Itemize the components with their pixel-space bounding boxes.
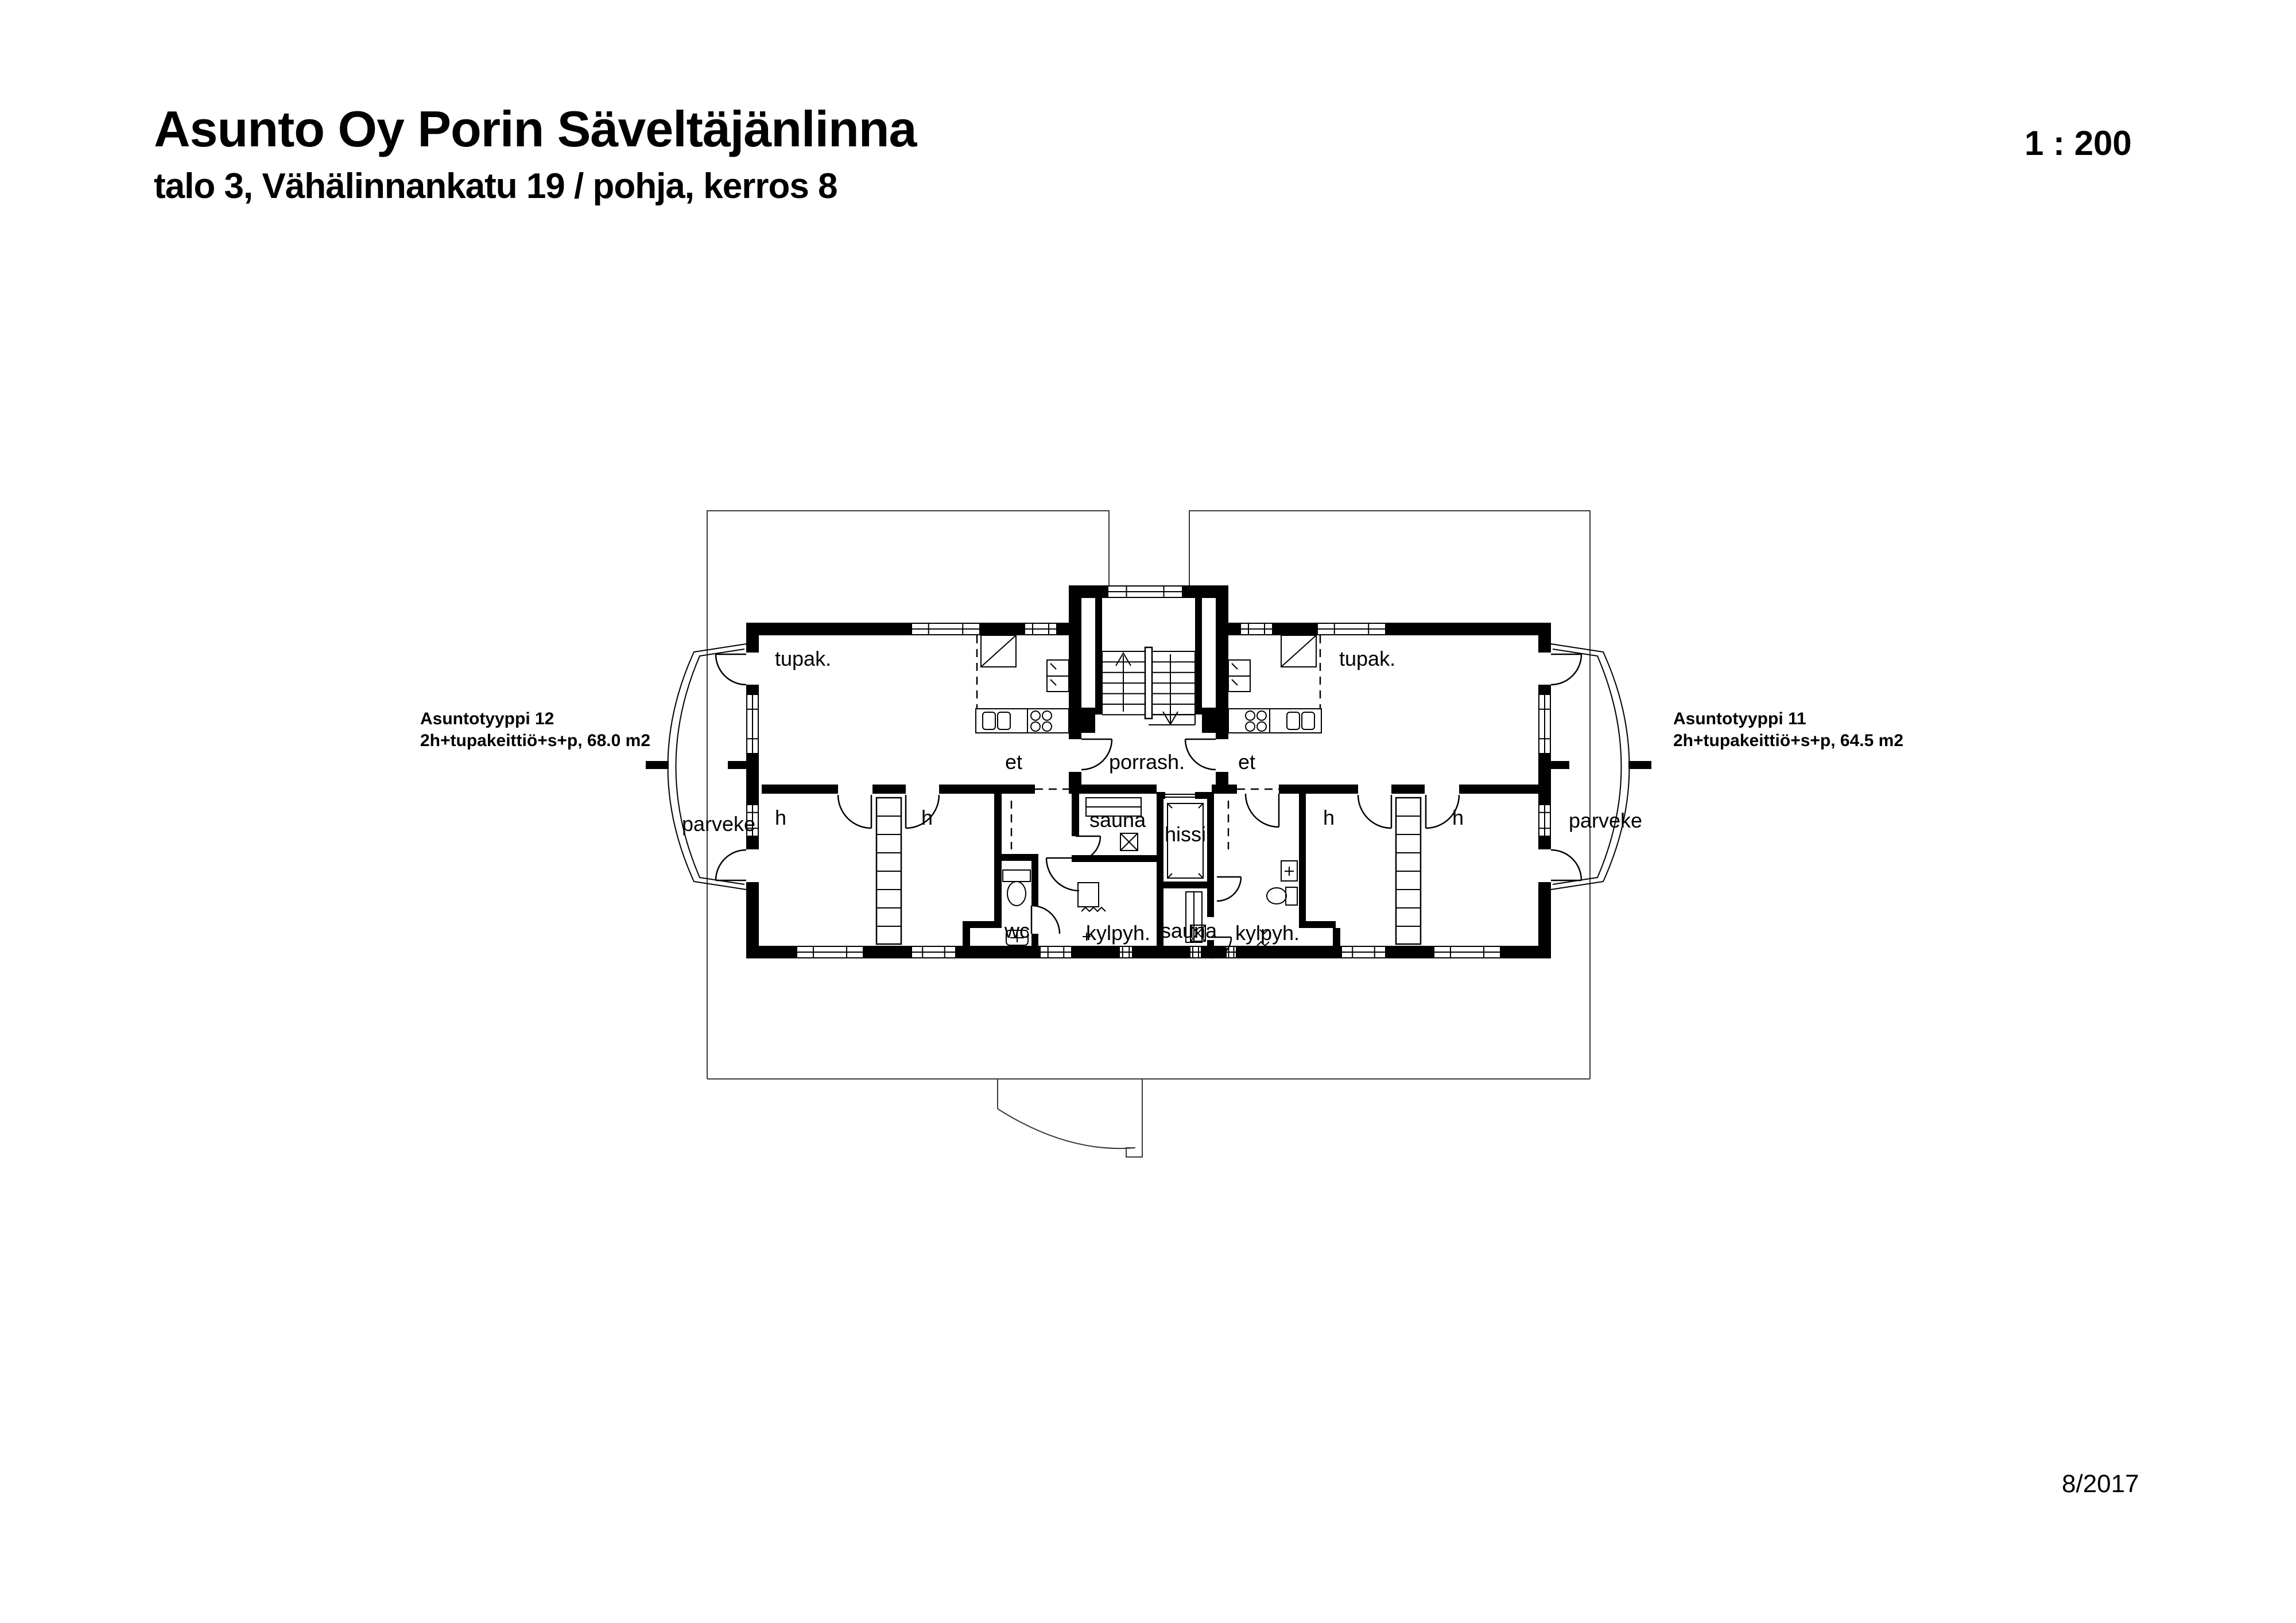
label-sauna-left: sauna bbox=[1089, 808, 1146, 832]
sheet-date: 8/2017 bbox=[2062, 1470, 2139, 1498]
sheet-subtitle: talo 3, Vähälinnankatu 19 / pohja, kerro… bbox=[154, 166, 837, 206]
label-h2: h bbox=[921, 806, 933, 829]
apartment-left-spec: 2h+tupakeittiö+s+p, 68.0 m2 bbox=[420, 731, 650, 750]
label-hissi: hissi bbox=[1165, 822, 1206, 846]
label-wc: wc bbox=[1004, 919, 1030, 942]
label-h3: h bbox=[1323, 806, 1335, 829]
apartment-right-name: Asuntotyyppi 11 bbox=[1673, 709, 1806, 728]
label-sauna-centre: sauna bbox=[1161, 919, 1217, 942]
label-parveke-left: parveke bbox=[682, 812, 755, 836]
sheet-scale: 1 : 200 bbox=[2024, 124, 2132, 162]
apartment-left-name: Asuntotyyppi 12 bbox=[420, 709, 554, 728]
label-tupak-right: tupak. bbox=[1339, 647, 1395, 670]
label-kylpyh-right: kylpyh. bbox=[1235, 921, 1300, 945]
label-parveke-right: parveke bbox=[1569, 809, 1642, 832]
label-et-right: et bbox=[1238, 750, 1255, 774]
label-tupak-left: tupak. bbox=[775, 647, 831, 670]
label-et-left: et bbox=[1005, 750, 1022, 774]
label-porrash: porrash. bbox=[1109, 750, 1185, 774]
sheet-title: Asunto Oy Porin Säveltäjänlinna bbox=[154, 100, 917, 157]
label-kylpyh-left: kylpyh. bbox=[1086, 921, 1150, 945]
label-h1: h bbox=[775, 806, 786, 829]
label-h4: h bbox=[1452, 806, 1464, 829]
drawing-sheet: tupak. tupak. et et porrash. parveke par… bbox=[0, 0, 2296, 1623]
apartment-right-spec: 2h+tupakeittiö+s+p, 64.5 m2 bbox=[1673, 731, 1903, 750]
floor-plan-svg: tupak. tupak. et et porrash. parveke par… bbox=[0, 0, 2296, 1623]
